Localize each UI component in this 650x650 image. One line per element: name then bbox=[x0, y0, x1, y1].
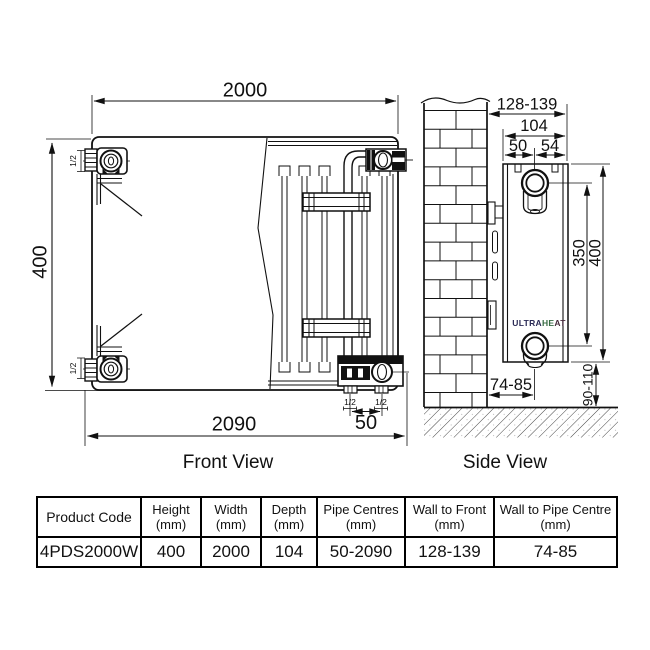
header-pipe-centres: Pipe Centres(mm) bbox=[317, 497, 405, 537]
brick-wall bbox=[421, 98, 490, 407]
dim-overall-width-label: 2090 bbox=[212, 414, 257, 436]
dim-side-height-label: 400 bbox=[587, 239, 605, 267]
dim-back-to-pipe-label: 50 bbox=[509, 137, 527, 155]
spec-table-wrap: Product Code Height(mm) Width(mm) Depth(… bbox=[36, 496, 618, 568]
dim-pipe-to-front-label: 54 bbox=[541, 137, 559, 155]
cell-width: 2000 bbox=[201, 537, 261, 567]
conn-bottom-right-b-label: 1/2 bbox=[375, 397, 387, 407]
header-product-code: Product Code bbox=[37, 497, 141, 537]
dim-floor-clearance-label: 90-110 bbox=[580, 364, 596, 407]
header-wall-to-front: Wall to Front(mm) bbox=[405, 497, 494, 537]
wall-bracket-lower bbox=[488, 301, 496, 329]
dim-width-top-label: 2000 bbox=[223, 80, 268, 102]
top-right-valve bbox=[366, 149, 413, 171]
spec-table: Product Code Height(mm) Width(mm) Depth(… bbox=[36, 496, 618, 568]
ground-hatch bbox=[424, 408, 618, 438]
cell-depth: 104 bbox=[261, 537, 317, 567]
cell-wall-to-pipe-centre: 74-85 bbox=[494, 537, 617, 567]
spec-data-row: 4PDS2000W 400 2000 104 50-2090 128-139 7… bbox=[37, 537, 617, 567]
header-width: Width(mm) bbox=[201, 497, 261, 537]
front-view-title: Front View bbox=[183, 452, 274, 473]
ultraheat-logo: ULTRAHEAT bbox=[512, 318, 566, 328]
radiator-spec-drawing: 2000 400 2090 50 1/2 1/2 1/2 1/2 Front V… bbox=[0, 0, 650, 650]
cell-product-code: 4PDS2000W bbox=[37, 537, 141, 567]
side-view: 128-139 104 50 54 350 400 90-110 74-85 U… bbox=[421, 96, 618, 474]
cell-height: 400 bbox=[141, 537, 201, 567]
header-wall-to-pipe-centre: Wall to Pipe Centre(mm) bbox=[494, 497, 617, 537]
side-view-title: Side View bbox=[463, 452, 547, 473]
conn-bottom-right-a-label: 1/2 bbox=[344, 397, 356, 407]
cell-pipe-centres: 50-2090 bbox=[317, 537, 405, 567]
bottom-bracket-bar bbox=[303, 319, 370, 337]
conn-top-left-label: 1/2 bbox=[68, 155, 78, 167]
dim-wall-to-pipe-label: 74-85 bbox=[490, 376, 532, 394]
dim-pipe-centres-label: 50 bbox=[355, 412, 377, 434]
spec-header-row: Product Code Height(mm) Width(mm) Depth(… bbox=[37, 497, 617, 537]
dim-depth-label: 104 bbox=[520, 117, 548, 135]
conn-bottom-left-label: 1/2 bbox=[68, 362, 78, 374]
cell-wall-to-front: 128-139 bbox=[405, 537, 494, 567]
front-view: 2000 400 2090 50 1/2 1/2 1/2 1/2 Front V… bbox=[30, 80, 414, 474]
dim-wall-to-front-label: 128-139 bbox=[497, 96, 558, 114]
wall-bracket-upper bbox=[488, 202, 503, 224]
top-bracket-bar bbox=[303, 193, 370, 211]
header-depth: Depth(mm) bbox=[261, 497, 317, 537]
header-height: Height(mm) bbox=[141, 497, 201, 537]
dim-height-label: 400 bbox=[30, 245, 52, 278]
